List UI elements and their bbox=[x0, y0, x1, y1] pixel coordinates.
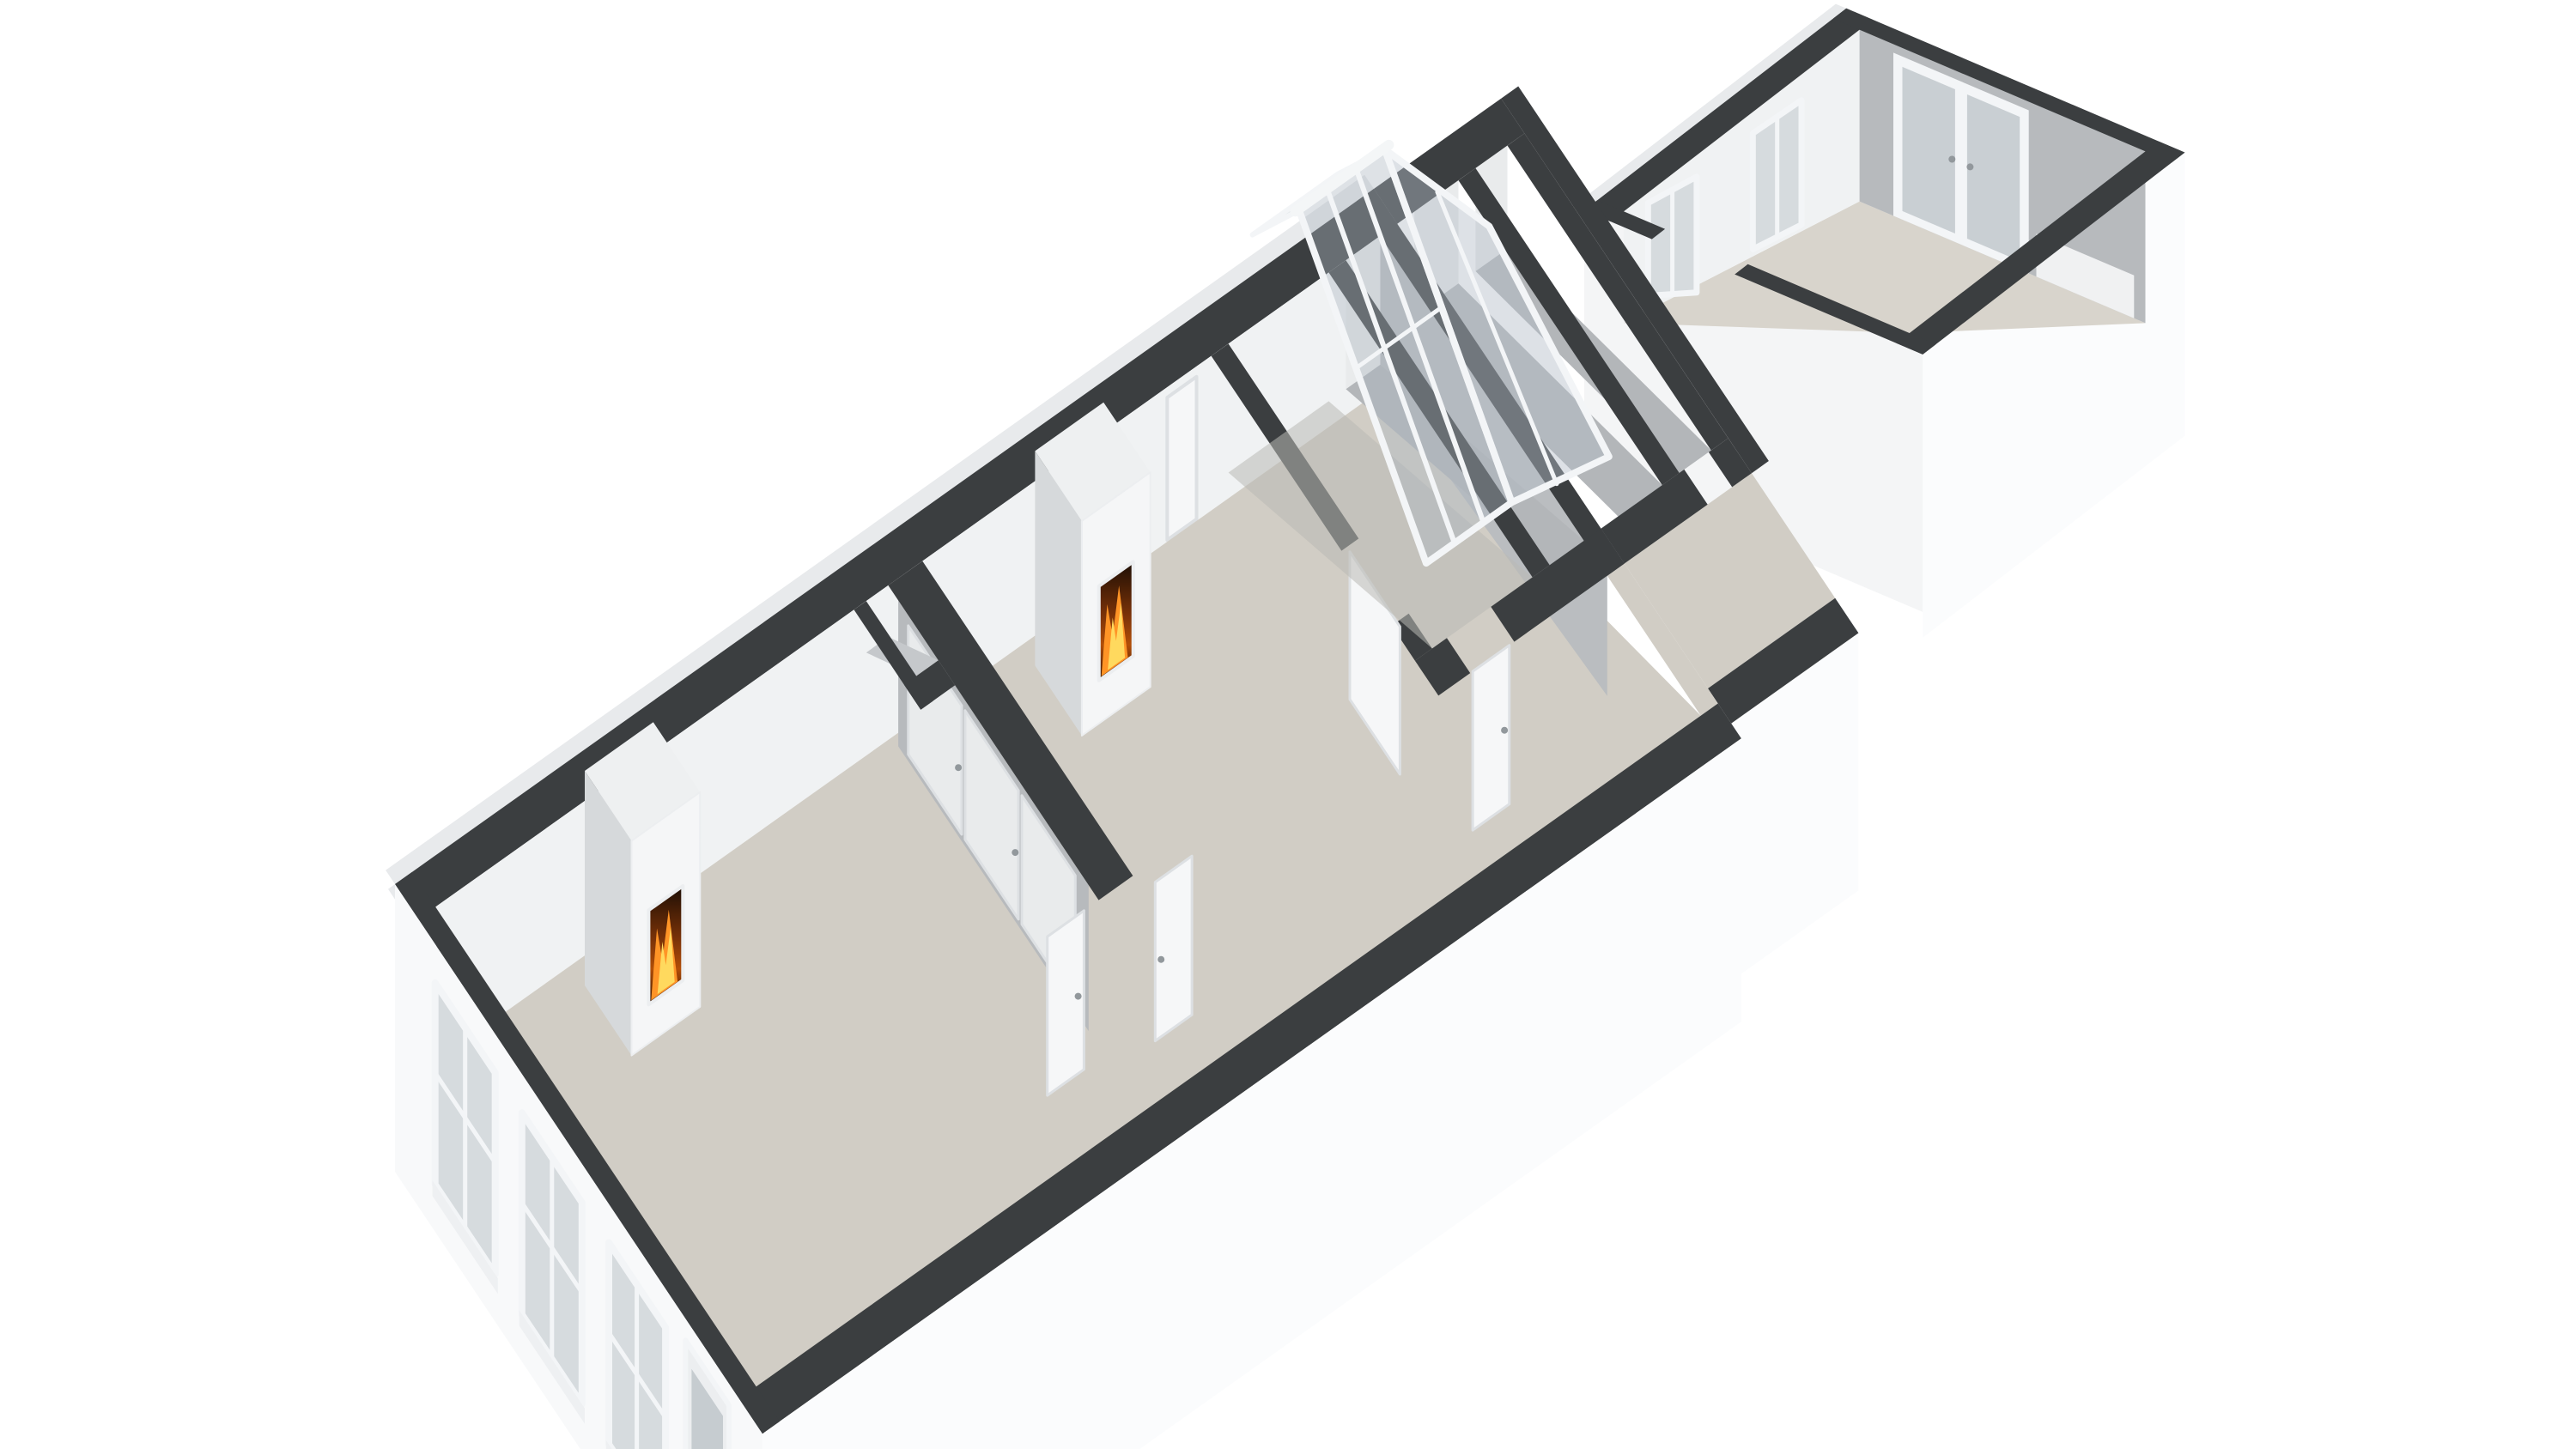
hall-door-handle bbox=[1501, 727, 1508, 734]
annex-french-door-glass-left bbox=[1903, 67, 1955, 233]
floorplan-viewport[interactable] bbox=[0, 0, 2576, 1449]
hall-door-leaf bbox=[1473, 646, 1510, 830]
backroom-nw-door bbox=[1167, 377, 1196, 540]
closet-handle-2 bbox=[1012, 849, 1018, 856]
annex-french-door-glass-right bbox=[1967, 94, 2020, 261]
ensuite-door-left-handle bbox=[1075, 993, 1082, 1000]
closet-handle-1 bbox=[955, 764, 962, 771]
ensuite-door-right bbox=[1155, 856, 1192, 1040]
floorplan-3d-render bbox=[0, 0, 2576, 1449]
ensuite-door-left bbox=[1048, 911, 1084, 1095]
annex-door-handle-right bbox=[1966, 163, 1973, 170]
ensuite-door-right-handle bbox=[1157, 956, 1164, 963]
floorplan-layers bbox=[386, 4, 2184, 1449]
annex-door-handle-left bbox=[1948, 156, 1955, 163]
